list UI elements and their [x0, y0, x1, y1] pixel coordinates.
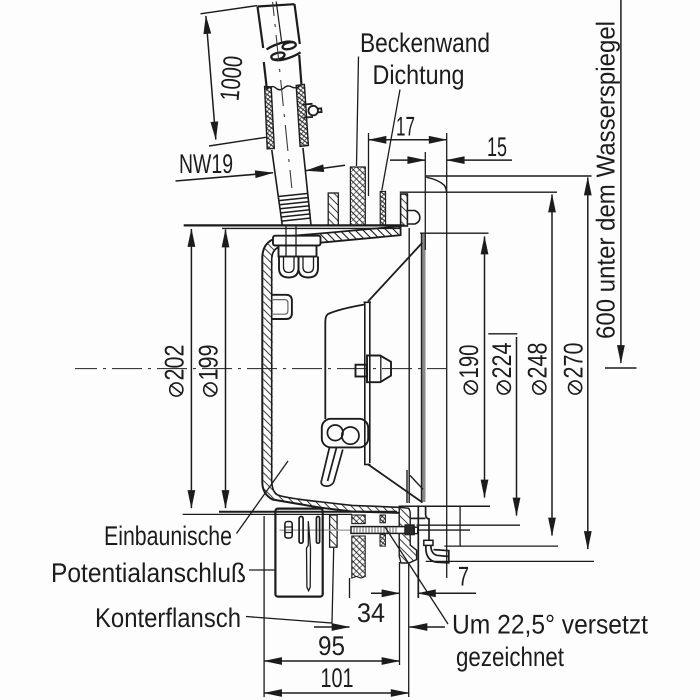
svg-text:Potentialanschluß: Potentialanschluß: [51, 558, 246, 588]
svg-text:600 unter dem Wasserspiegel: 600 unter dem Wasserspiegel: [591, 21, 621, 339]
svg-text:NW19: NW19: [179, 149, 233, 179]
svg-text:199: 199: [194, 345, 224, 381]
svg-text:Um 22,5° versetzt: Um 22,5° versetzt: [452, 610, 648, 640]
svg-text:101: 101: [321, 663, 354, 693]
svg-text:95: 95: [318, 631, 345, 661]
svg-text:190: 190: [454, 345, 484, 379]
svg-text:gezeichnet: gezeichnet: [456, 642, 564, 672]
svg-text:Konterflansch: Konterflansch: [95, 603, 241, 633]
svg-text:Dichtung: Dichtung: [373, 60, 465, 90]
svg-text:17: 17: [396, 112, 415, 142]
svg-text:7: 7: [458, 562, 469, 592]
svg-text:1000: 1000: [215, 55, 249, 102]
svg-text:270: 270: [558, 343, 588, 379]
svg-text:15: 15: [487, 132, 507, 162]
svg-text:Beckenwand: Beckenwand: [360, 28, 490, 58]
svg-text:Einbaunische: Einbaunische: [104, 521, 232, 551]
svg-text:202: 202: [160, 345, 190, 381]
svg-text:224: 224: [487, 343, 517, 379]
svg-text:248: 248: [523, 343, 553, 379]
svg-text:34: 34: [357, 598, 385, 628]
